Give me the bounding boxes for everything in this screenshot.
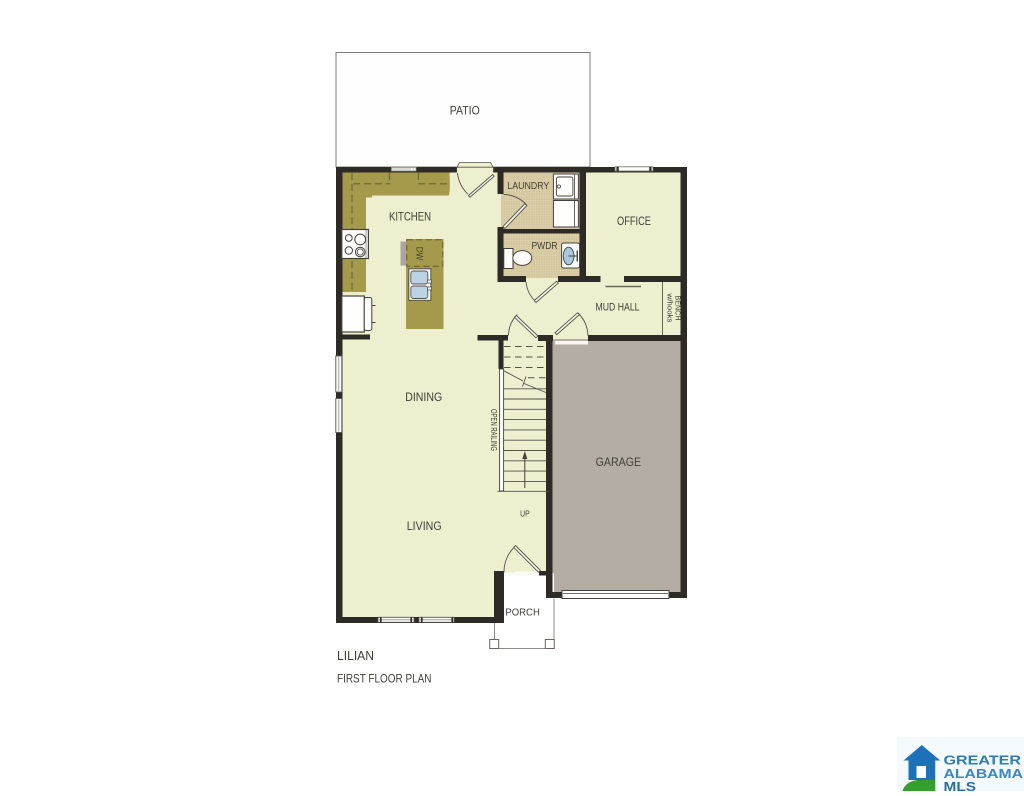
svg-text:MLS: MLS — [944, 779, 977, 791]
svg-text:DW: DW — [414, 247, 425, 261]
svg-text:MUD HALL: MUD HALL — [596, 302, 640, 314]
svg-text:FIRST FLOOR PLAN: FIRST FLOOR PLAN — [337, 672, 432, 686]
svg-text:DINING: DINING — [405, 390, 442, 404]
svg-text:LIVING: LIVING — [407, 521, 442, 533]
svg-text:KITCHEN: KITCHEN — [389, 212, 431, 224]
svg-text:LAUNDRY: LAUNDRY — [507, 181, 549, 192]
svg-text:LILIAN: LILIAN — [337, 648, 374, 663]
svg-text:OFFICE: OFFICE — [617, 216, 651, 228]
svg-text:w/hooks: w/hooks — [666, 292, 673, 323]
svg-text:BENCH: BENCH — [674, 296, 683, 321]
svg-text:UP: UP — [520, 509, 530, 519]
svg-text:PWDR: PWDR — [532, 241, 558, 252]
svg-text:OPEN RAILING: OPEN RAILING — [489, 409, 498, 451]
svg-text:PORCH: PORCH — [505, 606, 540, 618]
svg-text:GARAGE: GARAGE — [596, 455, 642, 469]
svg-text:PATIO: PATIO — [450, 106, 480, 118]
